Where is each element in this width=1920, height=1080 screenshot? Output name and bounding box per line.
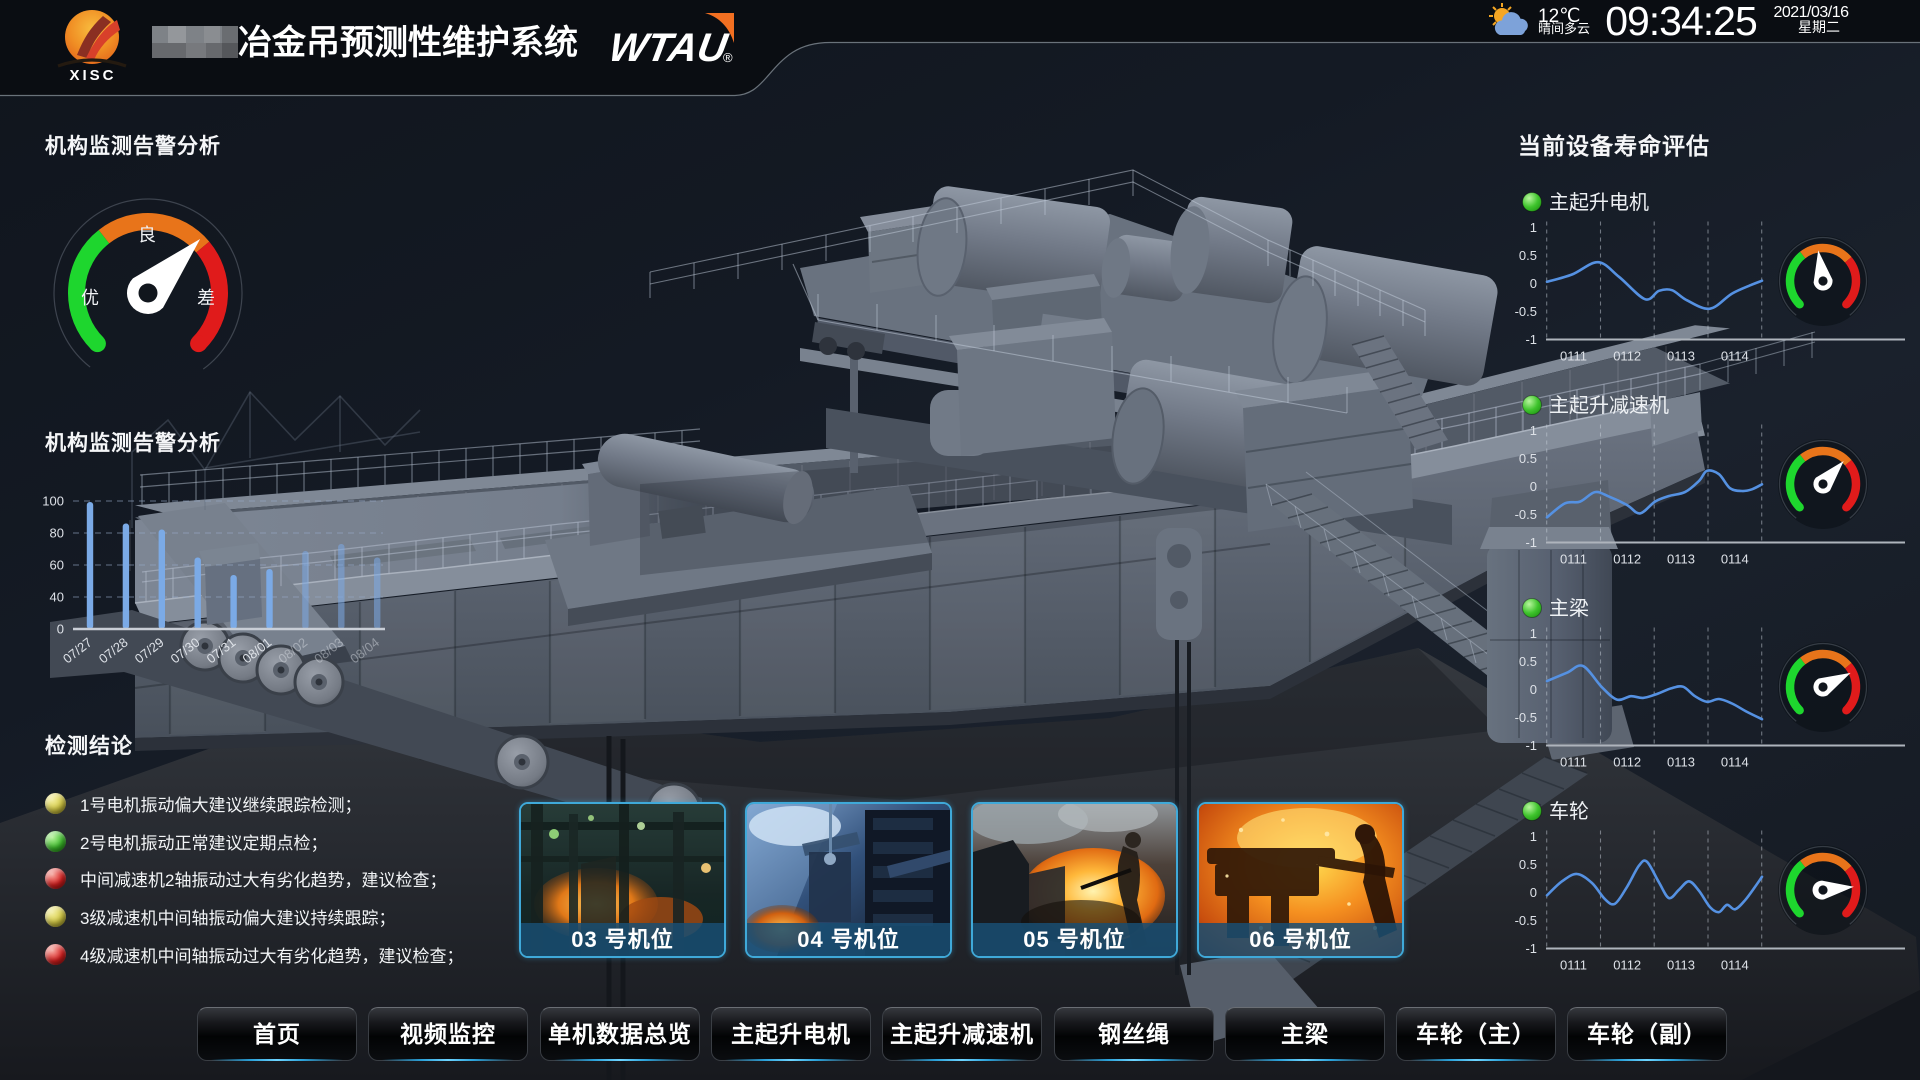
svg-text:0111: 0111 bbox=[1560, 349, 1587, 364]
svg-text:®: ® bbox=[723, 50, 733, 65]
svg-text:检测结论: 检测结论 bbox=[45, 734, 133, 758]
svg-text:1: 1 bbox=[1530, 626, 1537, 641]
svg-text:0.5: 0.5 bbox=[1519, 654, 1537, 669]
svg-text:-0.5: -0.5 bbox=[1515, 913, 1537, 928]
svg-text:差: 差 bbox=[197, 288, 215, 308]
svg-text:机构监测告警分析: 机构监测告警分析 bbox=[45, 134, 221, 158]
svg-text:1: 1 bbox=[1530, 829, 1537, 844]
svg-text:-1: -1 bbox=[1525, 332, 1537, 347]
svg-text:0114: 0114 bbox=[1721, 349, 1749, 364]
svg-text:0111: 0111 bbox=[1560, 755, 1587, 770]
svg-text:0: 0 bbox=[1530, 885, 1537, 900]
svg-text:0.5: 0.5 bbox=[1519, 248, 1537, 263]
svg-text:良: 良 bbox=[138, 225, 156, 245]
svg-text:优: 优 bbox=[81, 288, 99, 308]
svg-text:0: 0 bbox=[1530, 276, 1537, 291]
svg-text:0111: 0111 bbox=[1560, 958, 1587, 973]
svg-text:0113: 0113 bbox=[1667, 958, 1695, 973]
svg-text:-1: -1 bbox=[1525, 738, 1537, 753]
svg-text:0113: 0113 bbox=[1667, 755, 1695, 770]
svg-text:100: 100 bbox=[42, 494, 64, 509]
svg-text:星期二: 星期二 bbox=[1798, 19, 1840, 35]
svg-text:冶金吊预测性维护系统: 冶金吊预测性维护系统 bbox=[238, 23, 578, 62]
svg-text:WTAU: WTAU bbox=[606, 25, 732, 70]
svg-text:0112: 0112 bbox=[1613, 349, 1641, 364]
svg-text:0114: 0114 bbox=[1721, 552, 1749, 567]
svg-text:机构监测告警分析: 机构监测告警分析 bbox=[45, 431, 221, 455]
svg-text:0114: 0114 bbox=[1721, 755, 1749, 770]
svg-text:-0.5: -0.5 bbox=[1515, 304, 1537, 319]
svg-text:0114: 0114 bbox=[1721, 958, 1749, 973]
svg-text:主梁: 主梁 bbox=[1549, 597, 1589, 620]
svg-text:-0.5: -0.5 bbox=[1515, 710, 1537, 725]
svg-text:车轮: 车轮 bbox=[1549, 800, 1589, 823]
svg-text:0112: 0112 bbox=[1613, 552, 1641, 567]
svg-text:-1: -1 bbox=[1525, 535, 1537, 550]
svg-text:0112: 0112 bbox=[1613, 755, 1641, 770]
svg-text:主起升电机: 主起升电机 bbox=[1549, 191, 1649, 214]
svg-text:XISC: XISC bbox=[69, 67, 116, 84]
svg-text:-0.5: -0.5 bbox=[1515, 507, 1537, 522]
svg-text:-1: -1 bbox=[1525, 941, 1537, 956]
svg-text:0113: 0113 bbox=[1667, 349, 1695, 364]
svg-text:0.5: 0.5 bbox=[1519, 857, 1537, 872]
svg-text:40: 40 bbox=[50, 590, 64, 605]
svg-text:0: 0 bbox=[57, 622, 64, 637]
svg-text:1: 1 bbox=[1530, 220, 1537, 235]
svg-text:60: 60 bbox=[50, 558, 64, 573]
svg-text:0111: 0111 bbox=[1560, 552, 1587, 567]
svg-text:主起升减速机: 主起升减速机 bbox=[1549, 394, 1669, 417]
svg-text:当前设备寿命评估: 当前设备寿命评估 bbox=[1518, 133, 1710, 159]
svg-text:0: 0 bbox=[1530, 479, 1537, 494]
svg-text:0113: 0113 bbox=[1667, 552, 1695, 567]
svg-text:晴间多云: 晴间多云 bbox=[1538, 21, 1590, 36]
svg-text:0: 0 bbox=[1530, 682, 1537, 697]
svg-text:09:34:25: 09:34:25 bbox=[1605, 0, 1757, 44]
svg-text:1: 1 bbox=[1530, 423, 1537, 438]
svg-text:0.5: 0.5 bbox=[1519, 451, 1537, 466]
svg-text:80: 80 bbox=[50, 526, 64, 541]
svg-text:0112: 0112 bbox=[1613, 958, 1641, 973]
